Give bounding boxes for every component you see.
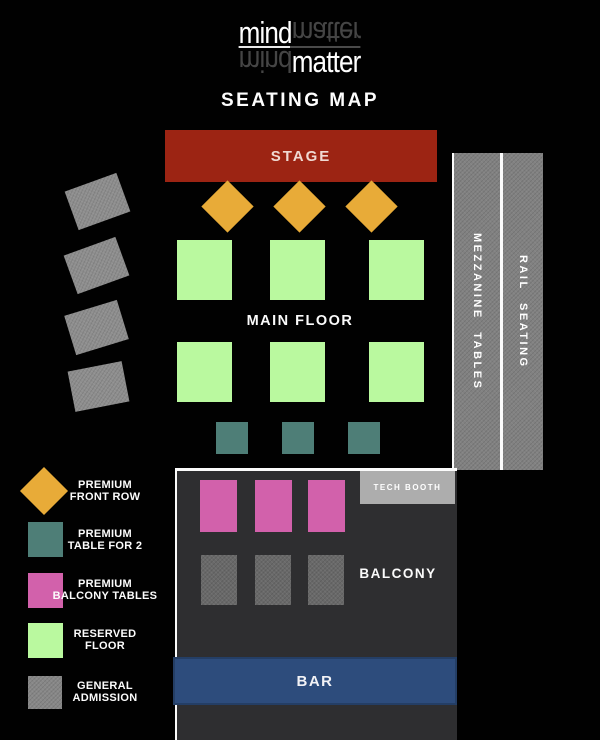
right-side-sections: MEZZANINE TABLES RAIL SEATING [452, 153, 543, 470]
brand-word-matter: matter [292, 47, 361, 76]
legend-label-general-admission: GENERAL ADMISSION [50, 680, 160, 704]
legend-label-premium-balcony-tables: PREMIUM BALCONY TABLES [50, 578, 160, 602]
logo-row-bottom: mindmatter [239, 47, 361, 76]
brand-word-mind: mind [239, 18, 292, 47]
premium-front-row-seat [345, 180, 397, 232]
mezzanine-tables-label: MEZZANINE TABLES [471, 233, 483, 390]
reserved-floor-seat [177, 240, 232, 300]
premium-front-row-seat [273, 180, 325, 232]
general-admission-block [64, 300, 129, 355]
reserved-floor-seat [270, 342, 325, 402]
balcony-general-admission-seat [201, 555, 237, 605]
legend-label-reserved-floor: RESERVED FLOOR [50, 628, 160, 652]
premium-table-for-2-seat [282, 422, 314, 454]
brand-word-matter-reflection: matter [292, 18, 361, 47]
balcony-general-admission-seat [308, 555, 344, 605]
premium-table-for-2-seat [216, 422, 248, 454]
stage-label: STAGE [271, 148, 332, 165]
brand-logo: mindmatter mindmatter [0, 18, 600, 76]
logo-divider [239, 46, 361, 48]
general-admission-block [65, 173, 131, 230]
premium-balcony-table-seat [255, 480, 292, 532]
premium-balcony-table-seat [200, 480, 237, 532]
page-title: SEATING MAP [0, 90, 600, 112]
tech-booth-block: TECH BOOTH [360, 471, 455, 504]
balcony-general-admission-seat [255, 555, 291, 605]
tech-booth-label: TECH BOOTH [374, 483, 442, 492]
premium-table-for-2-seat [348, 422, 380, 454]
logo-row-top: mindmatter [239, 18, 361, 47]
brand-word-mind-reflection: mind [239, 47, 292, 76]
stage-block: STAGE [165, 130, 437, 182]
bar-block: BAR [173, 657, 457, 705]
reserved-floor-seat [177, 342, 232, 402]
rail-seating-section: RAIL SEATING [500, 153, 543, 470]
mezzanine-tables-section: MEZZANINE TABLES [452, 153, 500, 470]
general-admission-block [64, 237, 130, 294]
balcony-label: BALCONY [340, 566, 456, 581]
legend-label-premium-table-for-2: PREMIUM TABLE FOR 2 [50, 528, 160, 552]
legend-label-premium-front-row: PREMIUM FRONT ROW [50, 479, 160, 503]
bar-label: BAR [297, 673, 334, 690]
reserved-floor-seat [270, 240, 325, 300]
general-admission-block [68, 361, 130, 412]
premium-front-row-seat [201, 180, 253, 232]
main-floor-label: MAIN FLOOR [230, 313, 370, 329]
reserved-floor-seat [369, 240, 424, 300]
rail-seating-label: RAIL SEATING [517, 255, 529, 369]
premium-balcony-table-seat [308, 480, 345, 532]
reserved-floor-seat [369, 342, 424, 402]
seating-map-canvas: mindmatter mindmatter SEATING MAP STAGE … [0, 0, 600, 740]
